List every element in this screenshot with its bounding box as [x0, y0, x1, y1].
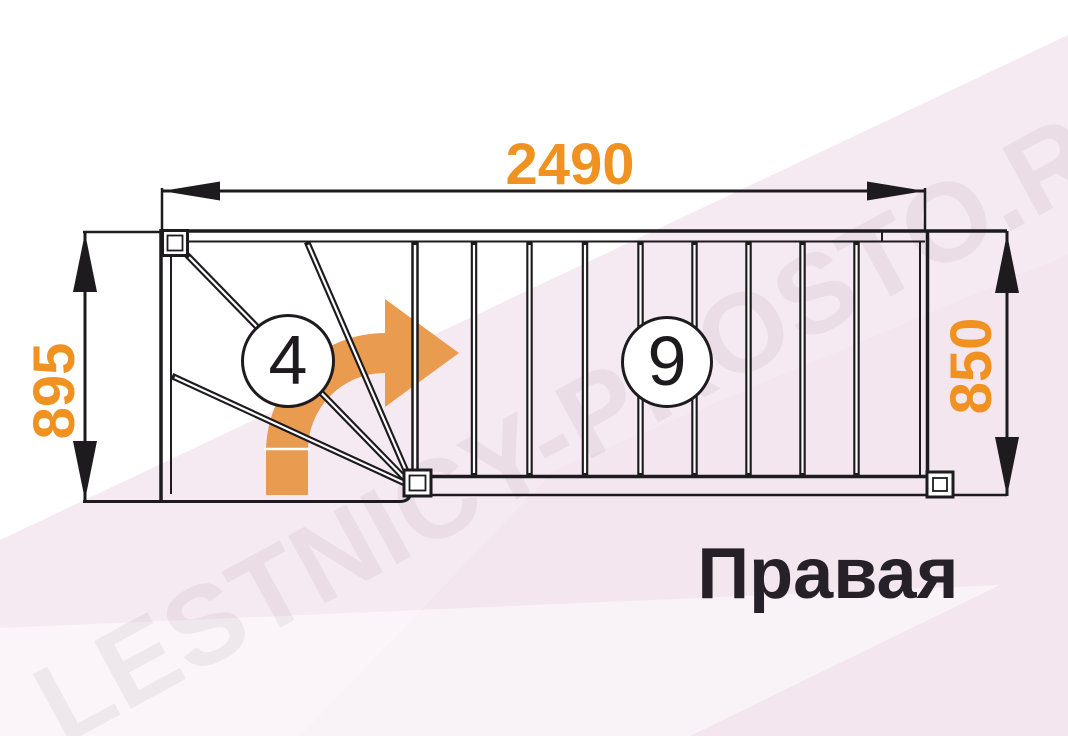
dimension-label-top: 2490: [470, 136, 670, 194]
orientation-label: Правая: [628, 538, 1028, 610]
arrowhead-right-icon: [867, 182, 925, 201]
arrowhead-up-icon: [73, 233, 97, 292]
staircase-plan-diagram: LESTNICY-PROSTO.RU: [0, 0, 1068, 736]
winder-steps-badge: 4: [241, 314, 335, 408]
dimension-label-right: 850: [943, 266, 1001, 466]
arrowhead-left-icon: [162, 182, 220, 201]
stair-plan-linework: [0, 0, 1068, 736]
stair-outline: [83, 229, 1007, 502]
dimension-label-left: 895: [26, 291, 84, 491]
straight-steps-badge: 9: [621, 316, 713, 408]
